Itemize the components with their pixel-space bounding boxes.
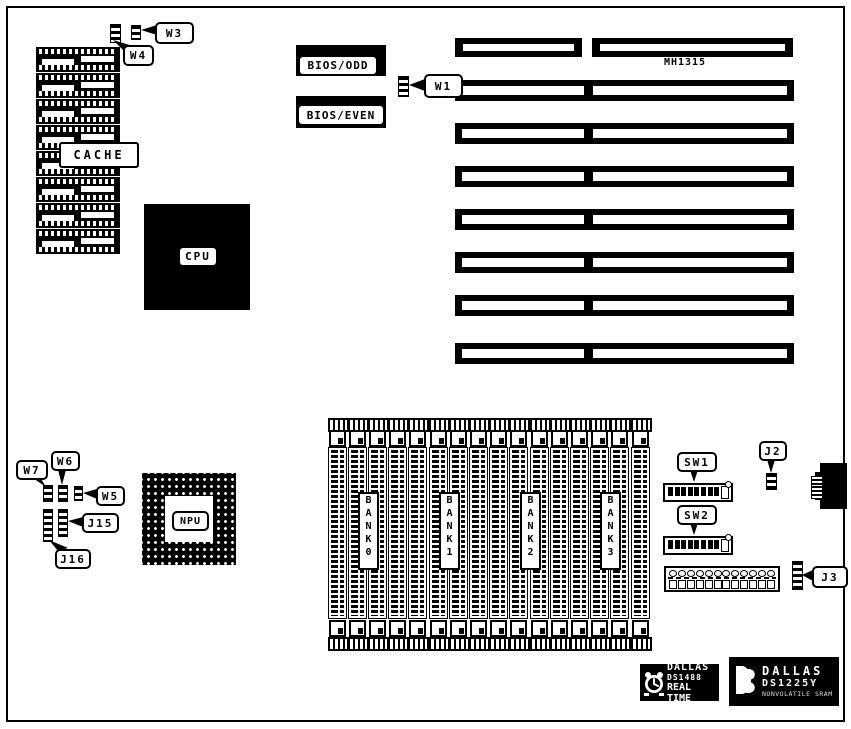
dip-switch-position	[675, 540, 680, 549]
simm-pin-column	[573, 450, 580, 616]
cache-chip-row	[36, 203, 120, 228]
dip-switch-sw1	[663, 483, 733, 502]
expansion-slot	[455, 123, 794, 144]
simm-socket-clip	[531, 430, 548, 447]
simm-pin-column	[582, 450, 586, 616]
jumper-j15	[58, 509, 68, 537]
jumper-w6	[58, 485, 68, 502]
chip-body	[42, 111, 74, 117]
dip-switch-position	[701, 487, 706, 496]
simm-socket-endbar	[631, 637, 652, 651]
expansion-slot	[455, 252, 794, 273]
simm-socket-clip	[450, 620, 467, 637]
simm-pin-column	[472, 450, 479, 616]
simm-socket-endbar	[509, 637, 530, 651]
alarm-clock-icon	[643, 668, 665, 698]
jumper-j16	[43, 509, 53, 542]
simm-pin-column	[420, 450, 424, 616]
sram-chip: DALLAS DS1225Y NONVOLATILE SRAM	[729, 657, 839, 706]
chip-pins	[39, 205, 117, 210]
simm-socket-clip	[369, 430, 386, 447]
bios-even-label: BIOS/EVEN	[299, 106, 383, 124]
simm-socket-clip	[591, 620, 608, 637]
chip-pins	[39, 231, 117, 236]
simm-socket-clip	[329, 430, 346, 447]
power-pin-oval	[749, 570, 757, 577]
keyboard-connector-pin-icon	[811, 476, 823, 487]
chip-body	[81, 134, 114, 140]
power-pin-oval	[758, 570, 766, 577]
simm-pin-column	[512, 450, 519, 616]
callout-sw2: SW2	[677, 505, 717, 525]
simm-socket	[388, 447, 407, 619]
power-pin-square	[687, 580, 695, 589]
simm-socket	[469, 447, 488, 619]
simm-socket-endbar	[388, 637, 409, 651]
bank-label: B A N K 0	[358, 492, 379, 570]
dip-switch-sw2	[663, 536, 733, 555]
dip-switch-position	[694, 540, 699, 549]
dip-switch-position	[688, 487, 693, 496]
dip-switch-position	[675, 487, 680, 496]
chip-pins	[39, 195, 117, 200]
callout-w3: W3	[155, 22, 194, 44]
simm-pin-column	[331, 450, 338, 616]
simm-pin-column	[593, 450, 600, 616]
cache-chip-row	[36, 177, 120, 202]
rtc-chip: DALLAS DS1488 REAL TIME	[640, 664, 719, 701]
simm-socket-endbar	[408, 637, 429, 651]
chip-body	[42, 215, 74, 221]
jumper-w5	[74, 486, 83, 501]
simm-socket	[631, 447, 650, 619]
callout-w5: W5	[96, 486, 125, 506]
simm-pin-column	[481, 450, 485, 616]
rtc-part: DS1488	[667, 673, 719, 682]
cache-chip-row	[36, 99, 120, 124]
dip-switch-dot-icon	[725, 534, 732, 541]
chip-body	[42, 59, 74, 65]
simm-socket-clip	[430, 430, 447, 447]
simm-socket-clip	[510, 430, 527, 447]
simm-socket-clip	[591, 430, 608, 447]
power-pin-oval	[669, 570, 677, 577]
simm-socket	[408, 447, 427, 619]
simm-pin-column	[553, 450, 560, 616]
power-pin-square	[758, 580, 766, 589]
chip-body	[81, 238, 114, 244]
dip-switch-position	[714, 540, 719, 549]
simm-pin-column	[391, 450, 398, 616]
simm-socket-clip	[389, 620, 406, 637]
jumper-j2	[766, 473, 777, 490]
expansion-slot	[455, 343, 794, 364]
simm-socket-endbar	[590, 637, 611, 651]
simm-socket	[328, 447, 347, 619]
expansion-slot	[455, 166, 794, 187]
sram-line3: NONVOLATILE SRAM	[762, 690, 833, 699]
power-pin-square	[731, 580, 739, 589]
slot-opening	[593, 258, 787, 267]
slot-opening	[463, 44, 574, 51]
expansion-slot	[455, 80, 794, 101]
expansion-slot	[455, 38, 582, 57]
bank-label: B A N K 3	[600, 492, 621, 570]
dip-switch-dot-icon	[725, 481, 732, 488]
simm-socket-endbar	[328, 637, 349, 651]
callout-w1: W1	[424, 74, 463, 98]
power-pin-square	[696, 580, 704, 589]
slot-opening	[593, 129, 787, 138]
chip-body	[81, 186, 114, 192]
power-pin-oval	[705, 570, 713, 577]
expansion-slot	[455, 209, 794, 230]
callout-w6: W6	[51, 451, 80, 471]
power-pin-oval	[678, 570, 686, 577]
simm-pin-column	[461, 450, 465, 616]
dip-switch-position	[708, 487, 713, 496]
cache-chip-row	[36, 229, 120, 254]
simm-socket-clip	[369, 620, 386, 637]
keyboard-connector	[820, 463, 847, 509]
slot-opening	[462, 301, 584, 310]
npu-label: NPU	[172, 511, 209, 531]
chip-body	[81, 82, 114, 88]
simm-socket-clip	[611, 620, 628, 637]
simm-socket-clip	[349, 620, 366, 637]
callout-j15: J15	[82, 513, 119, 533]
dip-switch-position	[668, 487, 673, 496]
chip-body	[42, 85, 74, 91]
cache-chip-row	[36, 47, 120, 72]
callout-w7: W7	[16, 460, 48, 480]
simm-socket-clip	[490, 430, 507, 447]
jumper-w3	[131, 25, 141, 40]
power-connector-divider	[668, 577, 776, 579]
cache-label: CACHE	[59, 142, 139, 168]
slot-opening	[462, 172, 584, 181]
jumper-w4	[110, 24, 121, 43]
bank-label: B A N K 1	[439, 492, 460, 570]
chip-pins	[39, 247, 117, 252]
jumper-w1	[398, 76, 409, 97]
slot-opening	[593, 301, 787, 310]
simm-socket-endbar	[469, 637, 490, 651]
simm-socket-clip	[329, 620, 346, 637]
power-connector	[664, 566, 780, 592]
simm-pin-column	[432, 450, 439, 616]
chip-pins	[39, 221, 117, 226]
callout-sw1: SW1	[677, 452, 717, 472]
npu-socket: NPU	[142, 473, 236, 565]
simm-socket-clip	[409, 430, 426, 447]
slot-opening	[593, 349, 787, 358]
simm-socket-clip	[470, 430, 487, 447]
simm-socket-clip	[551, 620, 568, 637]
simm-pin-column	[411, 450, 418, 616]
chip-pins	[39, 101, 117, 106]
jumper-w7	[43, 485, 53, 502]
chip-pins	[39, 169, 117, 174]
slot-opening	[462, 258, 584, 267]
chip-body	[42, 189, 74, 195]
dallas-logo-icon	[734, 663, 758, 701]
dip-switch-position	[694, 487, 699, 496]
simm-pin-column	[643, 450, 647, 616]
simm-socket-endbar	[550, 637, 571, 651]
power-pin-oval	[731, 570, 739, 577]
dip-switch-position	[708, 540, 713, 549]
simm-socket-clip	[531, 620, 548, 637]
simm-socket	[550, 447, 569, 619]
slot-opening	[593, 86, 787, 95]
simm-socket	[489, 447, 508, 619]
dip-switch-position	[701, 540, 706, 549]
simm-socket-clip	[571, 620, 588, 637]
power-pin-oval	[722, 570, 730, 577]
power-pin-oval	[740, 570, 748, 577]
simm-socket-clip	[490, 620, 507, 637]
cpu-label: CPU	[180, 248, 216, 265]
simm-pin-column	[492, 450, 499, 616]
simm-socket-endbar	[429, 637, 450, 651]
chip-body	[81, 56, 114, 62]
simm-socket-endbar	[348, 637, 369, 651]
power-pin-oval	[767, 570, 775, 577]
simm-socket-clip	[632, 430, 649, 447]
rtc-brand: DALLAS	[667, 662, 719, 673]
simm-socket-endbar	[530, 637, 551, 651]
cache-chip-row	[36, 73, 120, 98]
simm-socket-endbar	[449, 637, 470, 651]
power-pin-oval	[687, 570, 695, 577]
dip-switch-position	[714, 487, 719, 496]
simm-socket	[570, 447, 589, 619]
callout-w4: W4	[123, 45, 154, 66]
power-pin-square	[678, 580, 686, 589]
slot-opening	[462, 86, 584, 95]
expansion-slot	[592, 38, 793, 57]
simm-socket-clip	[409, 620, 426, 637]
slot-opening	[593, 172, 787, 181]
chip-body	[42, 241, 74, 247]
chip-pins	[39, 117, 117, 122]
slot-opening	[600, 44, 785, 51]
power-pin-square	[669, 580, 677, 589]
simm-pin-column	[340, 450, 344, 616]
simm-pin-column	[380, 450, 384, 616]
simm-socket-clip	[611, 430, 628, 447]
power-pin-square	[767, 580, 775, 589]
power-pin-square	[705, 580, 713, 589]
chip-pins	[39, 75, 117, 80]
chip-pins	[39, 49, 117, 54]
slot-opening	[462, 129, 584, 138]
power-pin-oval	[714, 570, 722, 577]
simm-pin-column	[501, 450, 505, 616]
simm-pin-column	[400, 450, 404, 616]
bios-odd-label: BIOS/ODD	[300, 57, 376, 74]
simm-socket-clip	[632, 620, 649, 637]
expansion-slot	[455, 295, 794, 316]
simm-socket-clip	[349, 430, 366, 447]
simm-socket-endbar	[489, 637, 510, 651]
simm-socket-clip	[430, 620, 447, 637]
simm-socket-clip	[470, 620, 487, 637]
dip-switch-position	[681, 540, 686, 549]
slot-opening	[462, 349, 584, 358]
chip-pins	[39, 127, 117, 132]
power-pin-oval	[696, 570, 704, 577]
callout-j3: J3	[812, 566, 848, 588]
power-pin-square	[740, 580, 748, 589]
simm-pin-column	[622, 450, 626, 616]
simm-socket-endbar	[610, 637, 631, 651]
slot-opening	[462, 215, 584, 224]
chip-pins	[39, 179, 117, 184]
bank-label: B A N K 2	[520, 492, 541, 570]
chip-body	[81, 212, 114, 218]
power-pin-square	[722, 580, 730, 589]
dip-switch-position	[688, 540, 693, 549]
simm-pin-column	[562, 450, 566, 616]
simm-socket-endbar	[368, 637, 389, 651]
sram-part: DS1225Y	[762, 678, 833, 690]
callout-j2: J2	[759, 441, 787, 461]
power-pin-square	[714, 580, 722, 589]
power-pin-square	[749, 580, 757, 589]
simm-socket-endbar	[570, 637, 591, 651]
slot-opening	[593, 215, 787, 224]
simm-socket-clip	[510, 620, 527, 637]
chip-pins	[39, 91, 117, 96]
keyboard-connector-pin-icon	[811, 487, 823, 499]
simm-pin-column	[351, 450, 358, 616]
simm-socket-clip	[551, 430, 568, 447]
board-model-label: MH1315	[640, 57, 730, 68]
simm-pin-column	[542, 450, 546, 616]
rtc-line3: REAL TIME	[667, 682, 719, 704]
simm-socket-clip	[571, 430, 588, 447]
chip-pins	[39, 65, 117, 70]
chip-body	[81, 108, 114, 114]
sram-brand: DALLAS	[762, 665, 833, 678]
simm-socket-clip	[450, 430, 467, 447]
callout-j16: J16	[55, 549, 91, 569]
dip-switch-position	[681, 487, 686, 496]
dip-switch-position	[668, 540, 673, 549]
jumper-j3	[792, 561, 803, 590]
simm-pin-column	[634, 450, 641, 616]
motherboard-diagram: CACHE CPU BIOS/ODD BIOS/EVEN MH1315 B A …	[0, 0, 851, 729]
simm-socket-clip	[389, 430, 406, 447]
